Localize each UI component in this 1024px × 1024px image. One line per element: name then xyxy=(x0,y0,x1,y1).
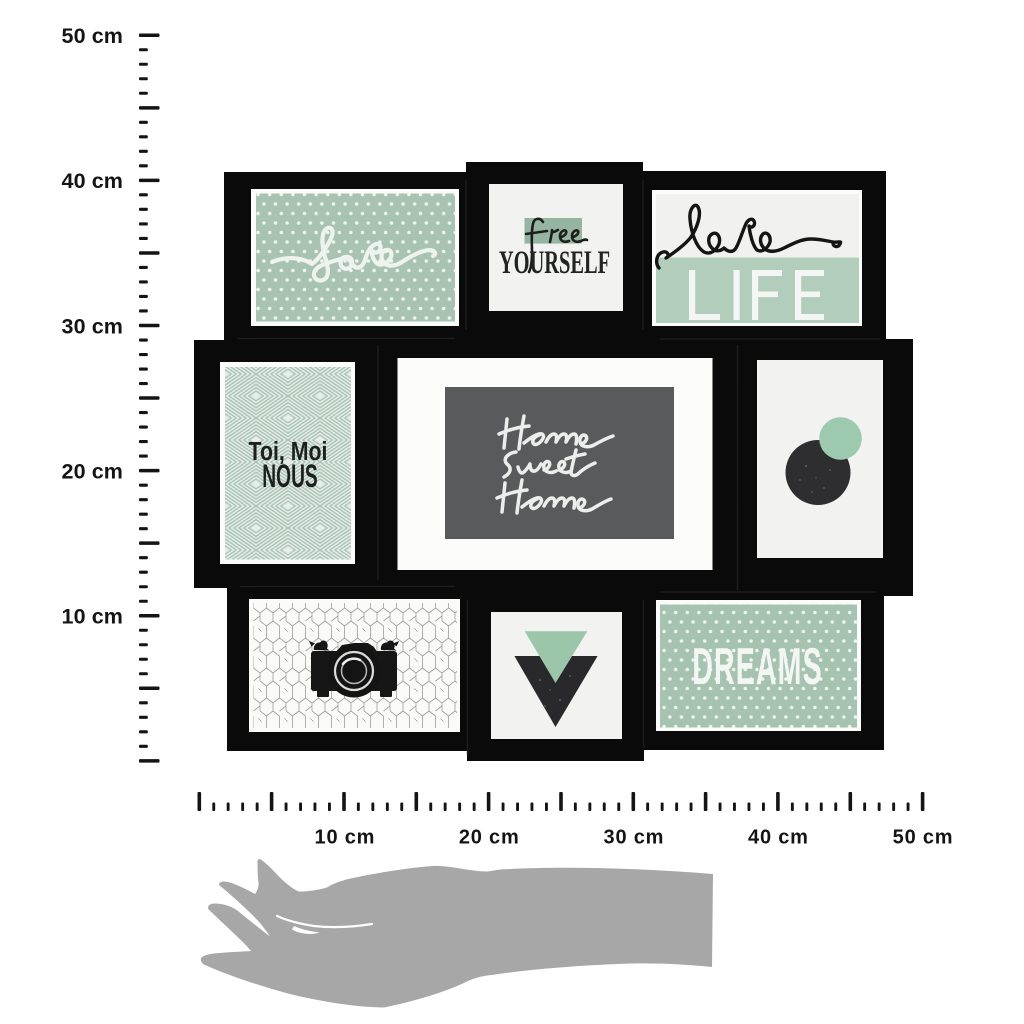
svg-text:NOUS: NOUS xyxy=(262,458,317,494)
svg-text:30 cm: 30 cm xyxy=(604,827,665,849)
svg-text:30 cm: 30 cm xyxy=(62,314,123,338)
svg-text:10 cm: 10 cm xyxy=(315,827,376,849)
svg-text:10 cm: 10 cm xyxy=(62,605,123,629)
svg-text:50 cm: 50 cm xyxy=(62,24,123,48)
svg-text:20 cm: 20 cm xyxy=(62,460,123,484)
svg-text:20 cm: 20 cm xyxy=(459,827,520,849)
svg-text:40 cm: 40 cm xyxy=(748,827,809,849)
svg-text:YOURSELF: YOURSELF xyxy=(499,244,610,280)
svg-text:50 cm: 50 cm xyxy=(893,827,954,849)
svg-text:40 cm: 40 cm xyxy=(62,169,123,193)
svg-text:DREAMS: DREAMS xyxy=(692,637,823,695)
